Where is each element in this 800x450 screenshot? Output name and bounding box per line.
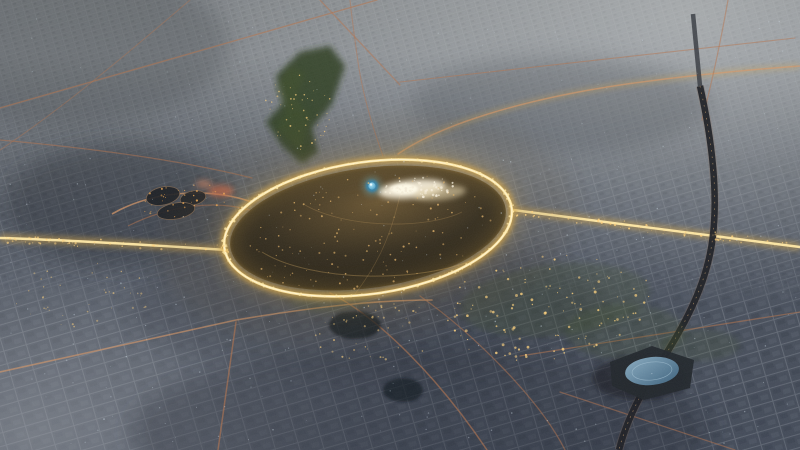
photo-grain <box>0 0 800 450</box>
aerial-city-rendering <box>0 0 800 450</box>
render-canvas <box>0 0 800 450</box>
